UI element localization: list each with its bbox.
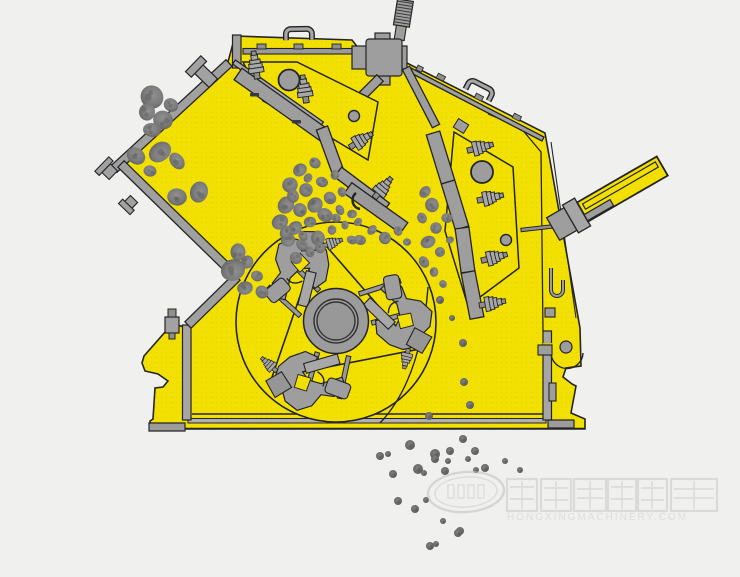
svg-text:HONGXINGMACHINERY.COM: HONGXINGMACHINERY.COM (507, 512, 688, 523)
